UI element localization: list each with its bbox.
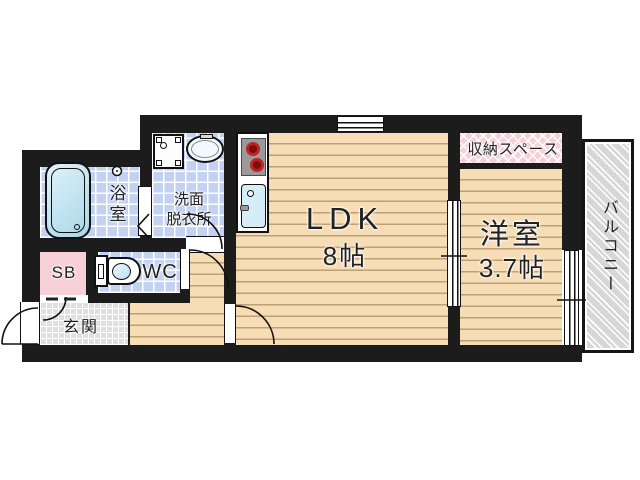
room-western-label: 洋室 <box>460 215 564 249</box>
floor-plan: バルコニー LDK 8帖 洋室 <box>0 0 640 480</box>
toilet-icon <box>94 255 144 289</box>
shoe-box-label: SB <box>44 261 84 285</box>
wall-bottom-outer <box>22 345 582 362</box>
room-washroom-label: 洗面 脱衣所 <box>154 186 224 234</box>
wall-hallway-east <box>224 133 236 305</box>
wall-ldk-western-top <box>448 133 460 200</box>
wc-door-opening <box>180 249 190 289</box>
faucet-icon <box>247 190 254 197</box>
balcony: バルコニー <box>582 139 634 353</box>
stove-burner <box>246 142 260 156</box>
basin-rim <box>191 140 219 158</box>
washroom-door-opening <box>186 236 224 253</box>
wall-washroom-west-jog <box>140 115 152 191</box>
washer-pan-corner <box>175 137 181 143</box>
room-ldk-size: 8帖 <box>275 240 415 268</box>
toilet-tank-inner <box>98 264 104 279</box>
kitchen-counter <box>236 132 269 233</box>
toilet-bowl-inner <box>112 263 131 280</box>
washroom-label-line2: 脱衣所 <box>166 210 211 230</box>
room-ldk-label: LDK <box>275 203 415 235</box>
ldk-door-opening <box>224 304 236 343</box>
washer-pan-corner <box>156 160 162 166</box>
bathtub-inner <box>51 168 85 233</box>
wall-top-bathroom <box>22 150 152 167</box>
toilet-bowl <box>107 257 141 285</box>
entrance-door-opening <box>20 302 40 344</box>
room-wc-label: WC <box>140 259 180 285</box>
sink-handle-icon <box>240 205 249 211</box>
washer-pan-corner <box>175 160 181 166</box>
balcony-label: バルコニー <box>596 199 620 294</box>
washer-drain <box>160 142 167 149</box>
shoe-box-gap <box>40 295 88 303</box>
room-entrance-label: 玄関 <box>52 313 110 337</box>
wall-storage-bottom <box>460 163 566 169</box>
balcony-floor: バルコニー <box>587 144 629 348</box>
stove-burner <box>250 158 264 172</box>
bathtub-drain <box>74 224 80 230</box>
room-western-size: 3.7帖 <box>456 251 568 281</box>
wall-wc-right-stub <box>180 288 190 303</box>
washroom-label-line1: 洗面 <box>174 190 204 210</box>
basin-faucet-icon <box>200 134 213 139</box>
storage-space-label: 収納スペース <box>460 134 566 162</box>
room-bathroom-label: 浴室 <box>102 177 130 233</box>
basin-icon <box>186 135 224 163</box>
toilet-tank <box>94 255 108 287</box>
wall-ldk-western-bottom <box>448 307 460 345</box>
ldk-top-window <box>337 116 384 132</box>
wall-wc-bottom <box>88 293 190 303</box>
kitchen-sink-icon <box>241 184 266 228</box>
bathtub-icon <box>45 162 91 239</box>
bathroom-folding-door <box>138 186 152 236</box>
stove-icon <box>241 138 266 176</box>
hallway-floor <box>130 303 224 345</box>
hallway-floor-upper <box>186 252 224 305</box>
washing-machine-icon <box>153 134 184 169</box>
